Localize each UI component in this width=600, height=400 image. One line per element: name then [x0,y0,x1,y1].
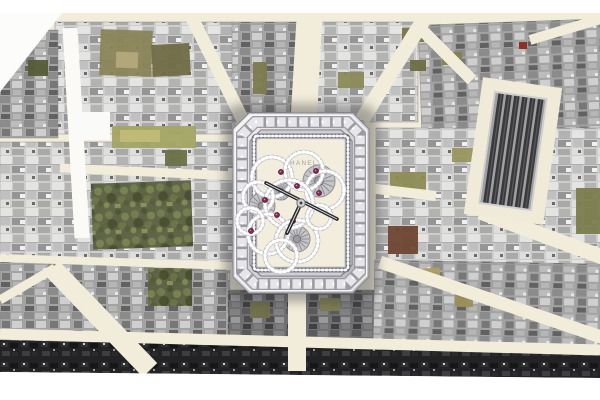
garden-patch [388,226,418,254]
garden-patch [148,268,192,306]
garden-patch [452,148,474,162]
ruby-jewel [317,191,322,196]
ruby-jewel [275,213,280,218]
garden-patch [91,180,193,249]
top-white-band [0,0,600,13]
ruby-glint [280,171,281,172]
ruby-jewel [263,198,268,203]
garden-patch [250,302,270,318]
ruby-jewel [249,229,254,234]
garden-patch [165,150,187,166]
garden-patch [410,60,426,71]
garden-patch [28,60,48,76]
ruby-glint [296,185,297,186]
ruby-glint [318,192,319,193]
white-patch [72,112,110,140]
ruby-jewel [279,170,284,175]
center-pivot [300,202,303,205]
garden-patch [253,62,267,94]
ruby-glint [276,214,277,215]
garden-patch [338,72,364,88]
garden-patch [151,43,191,77]
ruby-jewel [295,184,300,189]
ruby-glint [264,199,265,200]
red-roof [519,42,527,49]
ruby-glint [250,230,251,231]
garden-patch [120,130,160,142]
ruby-glint [315,170,316,171]
scene-svg: CHANEL [0,0,600,400]
gear-hub [293,235,300,242]
aerial-map-advert: CHANEL [0,0,600,400]
ruby-jewel [314,169,319,174]
garden-patch [116,52,139,69]
garden-patch [576,188,600,234]
